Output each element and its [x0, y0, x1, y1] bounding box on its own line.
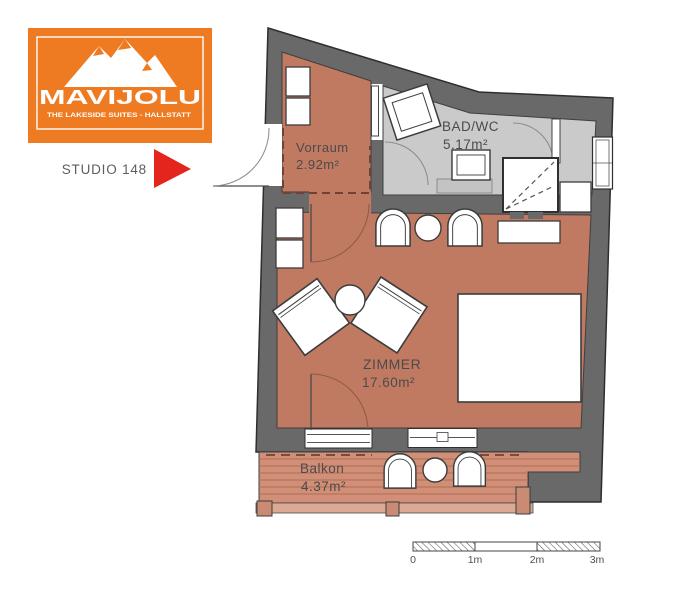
- zimmer-wardrobe: [276, 208, 303, 268]
- bath-cabinet: [560, 182, 591, 212]
- balkon-area: 4.37m²: [301, 479, 346, 494]
- vorraum-name: Vorraum: [296, 140, 349, 155]
- balcony-table: [423, 458, 447, 482]
- scale-segment-hatched: [413, 542, 475, 551]
- vorraum-area: 2.92m²: [296, 157, 340, 172]
- entrance-door: [213, 124, 282, 186]
- vorraum-zimmer-passage: [309, 191, 371, 214]
- bath-counter: [437, 179, 492, 193]
- floor-plan: Vorraum 2.92m² BAD/WC 5.17m² ZIMMER 17.6…: [213, 28, 613, 516]
- shower-foot: [528, 212, 543, 219]
- bath-window: [593, 137, 613, 189]
- mavijolu-logo: MAVIJOLU THE LAKESIDE SUITES - HALLSTATT: [28, 28, 212, 143]
- entrance-flag-icon: [154, 149, 191, 188]
- armchair: [376, 209, 410, 246]
- scale-segment-hatched: [537, 542, 600, 551]
- scale-bar: 0 1m 2m 3m: [410, 542, 604, 566]
- studio-label: STUDIO 148: [62, 162, 147, 177]
- balkon-name: Balkon: [300, 461, 344, 476]
- toilet: [452, 150, 490, 180]
- rail-post-left: [257, 501, 272, 516]
- scale-label-0: 0: [410, 554, 416, 566]
- side-table: [415, 215, 441, 241]
- dresser: [498, 221, 560, 243]
- rail-post-right: [516, 487, 530, 514]
- zimmer-window: [408, 429, 477, 448]
- shower-foot: [510, 212, 524, 219]
- zimmer-area: 17.60m²: [362, 375, 415, 390]
- balcony-armchair: [454, 452, 486, 486]
- rail-post-middle: [386, 502, 399, 516]
- floorplan-canvas: MAVIJOLU THE LAKESIDE SUITES - HALLSTATT…: [0, 0, 681, 597]
- zimmer-name: ZIMMER: [363, 356, 421, 372]
- bed: [458, 294, 581, 402]
- shower: [503, 158, 558, 219]
- logo-tagline: THE LAKESIDE SUITES - HALLSTATT: [47, 112, 191, 119]
- bath-door-leaf: [372, 86, 379, 136]
- scale-label-1m: 1m: [468, 554, 483, 566]
- logo-title: MAVIJOLU: [39, 87, 201, 109]
- floorplan-page: MAVIJOLU THE LAKESIDE SUITES - HALLSTATT…: [0, 0, 681, 597]
- bad-area: 5.17m²: [443, 137, 488, 152]
- coffee-table: [335, 285, 365, 315]
- shower-door-leaf: [552, 119, 560, 163]
- armchair: [448, 209, 482, 246]
- balcony-armchair: [384, 454, 416, 488]
- vorraum-wardrobe: [286, 67, 310, 125]
- scale-label-2m: 2m: [530, 554, 545, 566]
- scale-label-3m: 3m: [590, 554, 605, 566]
- bad-name: BAD/WC: [442, 119, 499, 134]
